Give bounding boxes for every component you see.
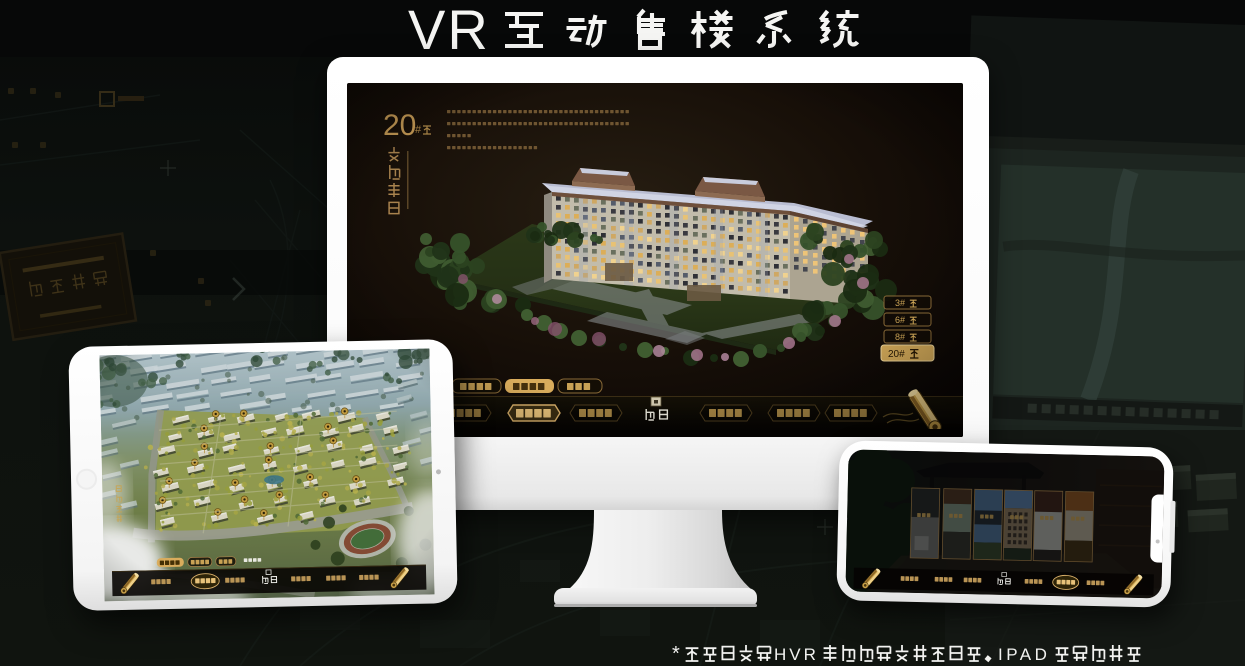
svg-text:HVR: HVR <box>774 645 819 664</box>
svg-text:VR: VR <box>408 0 490 60</box>
svg-text:*: * <box>672 643 680 665</box>
svg-text:IPAD: IPAD <box>998 645 1050 664</box>
